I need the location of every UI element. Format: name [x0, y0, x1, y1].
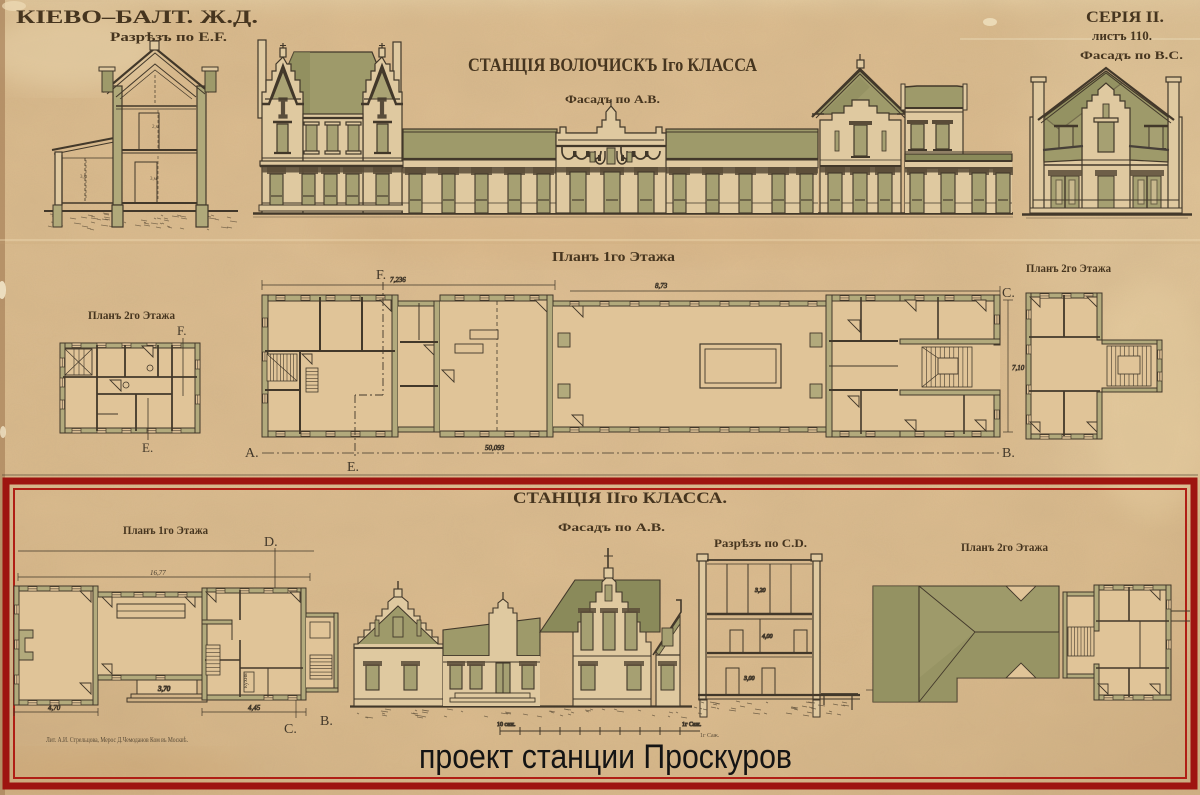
svg-text:2,м: 2,м — [152, 125, 160, 130]
svg-text:Фасадъ по В.С.: Фасадъ по В.С. — [1080, 48, 1183, 62]
svg-text:B.: B. — [320, 714, 333, 729]
svg-text:16,77: 16,77 — [150, 569, 166, 577]
svg-text:проект станции Проскуров: проект станции Проскуров — [419, 738, 792, 776]
svg-text:8,73: 8,73 — [655, 282, 668, 290]
svg-text:Лит. А.И. Стрельцова, Мерос Д.: Лит. А.И. Стрельцова, Мерос Д.Чемоданов … — [46, 736, 188, 744]
svg-text:3,00: 3,00 — [743, 676, 755, 682]
svg-text:F.: F. — [376, 268, 386, 283]
svg-text:4,70: 4,70 — [48, 704, 61, 712]
svg-text:Планъ 2го Этажа: Планъ 2го Этажа — [1026, 261, 1111, 275]
svg-text:1г Саж.: 1г Саж. — [682, 722, 702, 728]
svg-text:Планъ 2го Этажа: Планъ 2го Этажа — [88, 308, 175, 322]
svg-text:СТАНЦІЯ ВОЛОЧИСКЪ Іго КЛАССА: СТАНЦІЯ ВОЛОЧИСКЪ Іго КЛАССА — [468, 55, 757, 76]
svg-text:7,236: 7,236 — [390, 276, 406, 284]
svg-text:Планъ 1го Этажа: Планъ 1го Этажа — [552, 250, 675, 265]
svg-text:СТАНЦІЯ IIго КЛАССА.: СТАНЦІЯ IIго КЛАССА. — [513, 490, 727, 507]
svg-text:КІЕВО–БАЛТ. Ж.Д.: КІЕВО–БАЛТ. Ж.Д. — [16, 7, 258, 28]
svg-text:B.: B. — [1002, 446, 1015, 461]
svg-text:Фасадъ по А.В.: Фасадъ по А.В. — [558, 520, 665, 534]
svg-text:Планъ 2го Этажа: Планъ 2го Этажа — [961, 540, 1048, 554]
svg-text:Планъ 1го Этажа: Планъ 1го Этажа — [123, 523, 208, 537]
svg-text:Фасадъ по А.В.: Фасадъ по А.В. — [565, 92, 660, 106]
svg-text:листъ 110.: листъ 110. — [1092, 28, 1152, 43]
svg-text:4,45: 4,45 — [248, 704, 261, 712]
svg-text:кухня: кухня — [243, 673, 249, 688]
svg-text:F.: F. — [177, 323, 186, 338]
svg-text:3,70: 3,70 — [157, 685, 171, 693]
svg-text:3,м: 3,м — [80, 175, 88, 180]
svg-text:Разрѣзъ по Е.F.: Разрѣзъ по Е.F. — [110, 29, 227, 44]
svg-text:C.: C. — [284, 722, 297, 737]
svg-text:3,м: 3,м — [150, 177, 158, 182]
svg-text:Разрѣзъ по С.D.: Разрѣзъ по С.D. — [714, 536, 807, 550]
svg-text:D.: D. — [264, 535, 278, 550]
svg-text:E.: E. — [347, 460, 359, 475]
svg-text:E.: E. — [142, 440, 153, 455]
svg-text:50,093: 50,093 — [485, 444, 505, 452]
svg-text:C.: C. — [1002, 286, 1015, 301]
svg-text:7,10: 7,10 — [1012, 364, 1025, 372]
svg-text:4,00: 4,00 — [762, 633, 773, 640]
svg-text:A.: A. — [245, 446, 259, 461]
svg-text:СЕРІЯ II.: СЕРІЯ II. — [1086, 9, 1164, 26]
svg-text:10 саж.: 10 саж. — [497, 722, 516, 728]
svg-text:3,20: 3,20 — [754, 588, 766, 594]
